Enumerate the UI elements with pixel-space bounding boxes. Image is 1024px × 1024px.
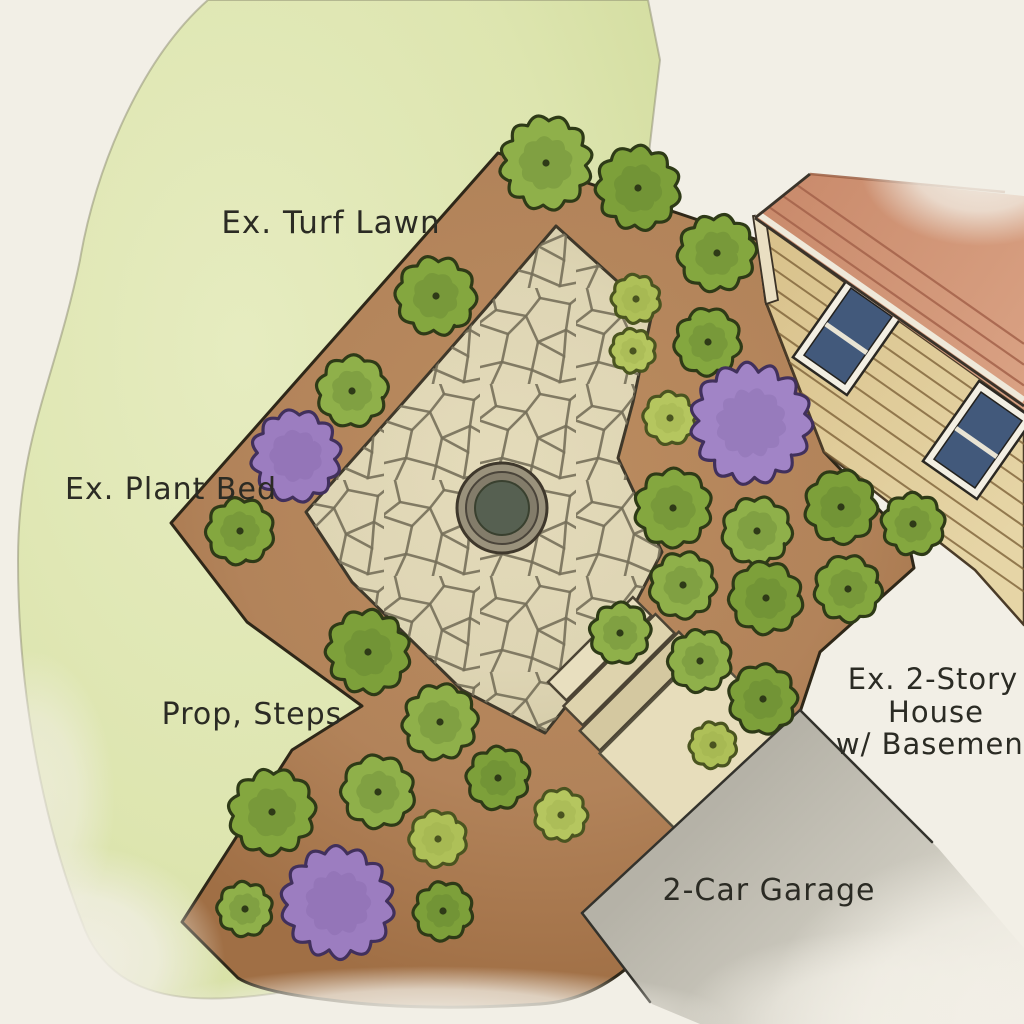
shrub-symbol-green — [317, 355, 389, 427]
shrub-symbol-light — [535, 788, 588, 841]
fire-pit — [457, 463, 547, 553]
shrub-symbol-green — [217, 881, 272, 936]
shrub-symbol-green — [805, 470, 878, 544]
label-turf-lawn: Ex. Turf Lawn — [221, 205, 440, 241]
shrub-symbol-green — [814, 556, 882, 623]
label-house-line-1: Ex. 2-Story — [848, 662, 1018, 696]
label-garage: 2-Car Garage — [663, 873, 876, 908]
shrub-symbol-green — [500, 116, 592, 210]
shrub-symbol-green — [667, 630, 730, 693]
plan-drawing: Ex. Turf LawnEx. Plant BedProp, StepsEx.… — [0, 0, 1024, 1024]
label-plant-bed: Ex. Plant Bed — [65, 472, 277, 507]
shrub-symbol-green — [590, 602, 652, 663]
shrub-symbol-light — [643, 391, 697, 444]
shrub-symbol-light — [611, 274, 660, 323]
shrub-symbol-green — [881, 492, 945, 554]
shrub-symbol-light — [610, 328, 655, 373]
landscape-plan: Ex. Turf LawnEx. Plant BedProp, StepsEx.… — [0, 0, 1024, 1024]
shrub-symbol-green — [413, 882, 473, 941]
label-house-line-2: House — [888, 695, 984, 729]
label-house-line-3: w/ Basement — [836, 727, 1024, 761]
shrub-symbol-green — [635, 468, 711, 548]
label-prop-steps: Prop, Steps — [162, 697, 343, 732]
